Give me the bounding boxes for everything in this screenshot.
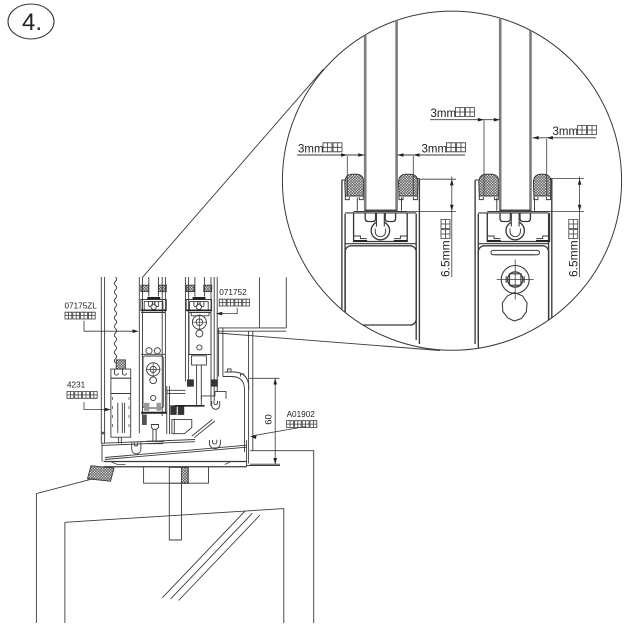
svg-text:071752: 071752 [219,288,247,297]
svg-text:6.5mm: 6.5mm [439,240,453,277]
svg-text:3mm: 3mm [431,108,457,120]
svg-text:4231: 4231 [67,381,86,390]
svg-text:4.: 4. [22,9,42,36]
svg-text:6.5mm: 6.5mm [566,240,580,277]
svg-text:3mm: 3mm [422,143,448,155]
svg-text:60: 60 [264,414,275,425]
svg-text:3mm: 3mm [298,143,324,155]
svg-text:07175ZL: 07175ZL [65,302,98,311]
svg-text:A01902: A01902 [287,410,316,419]
svg-text:3mm: 3mm [553,126,579,138]
